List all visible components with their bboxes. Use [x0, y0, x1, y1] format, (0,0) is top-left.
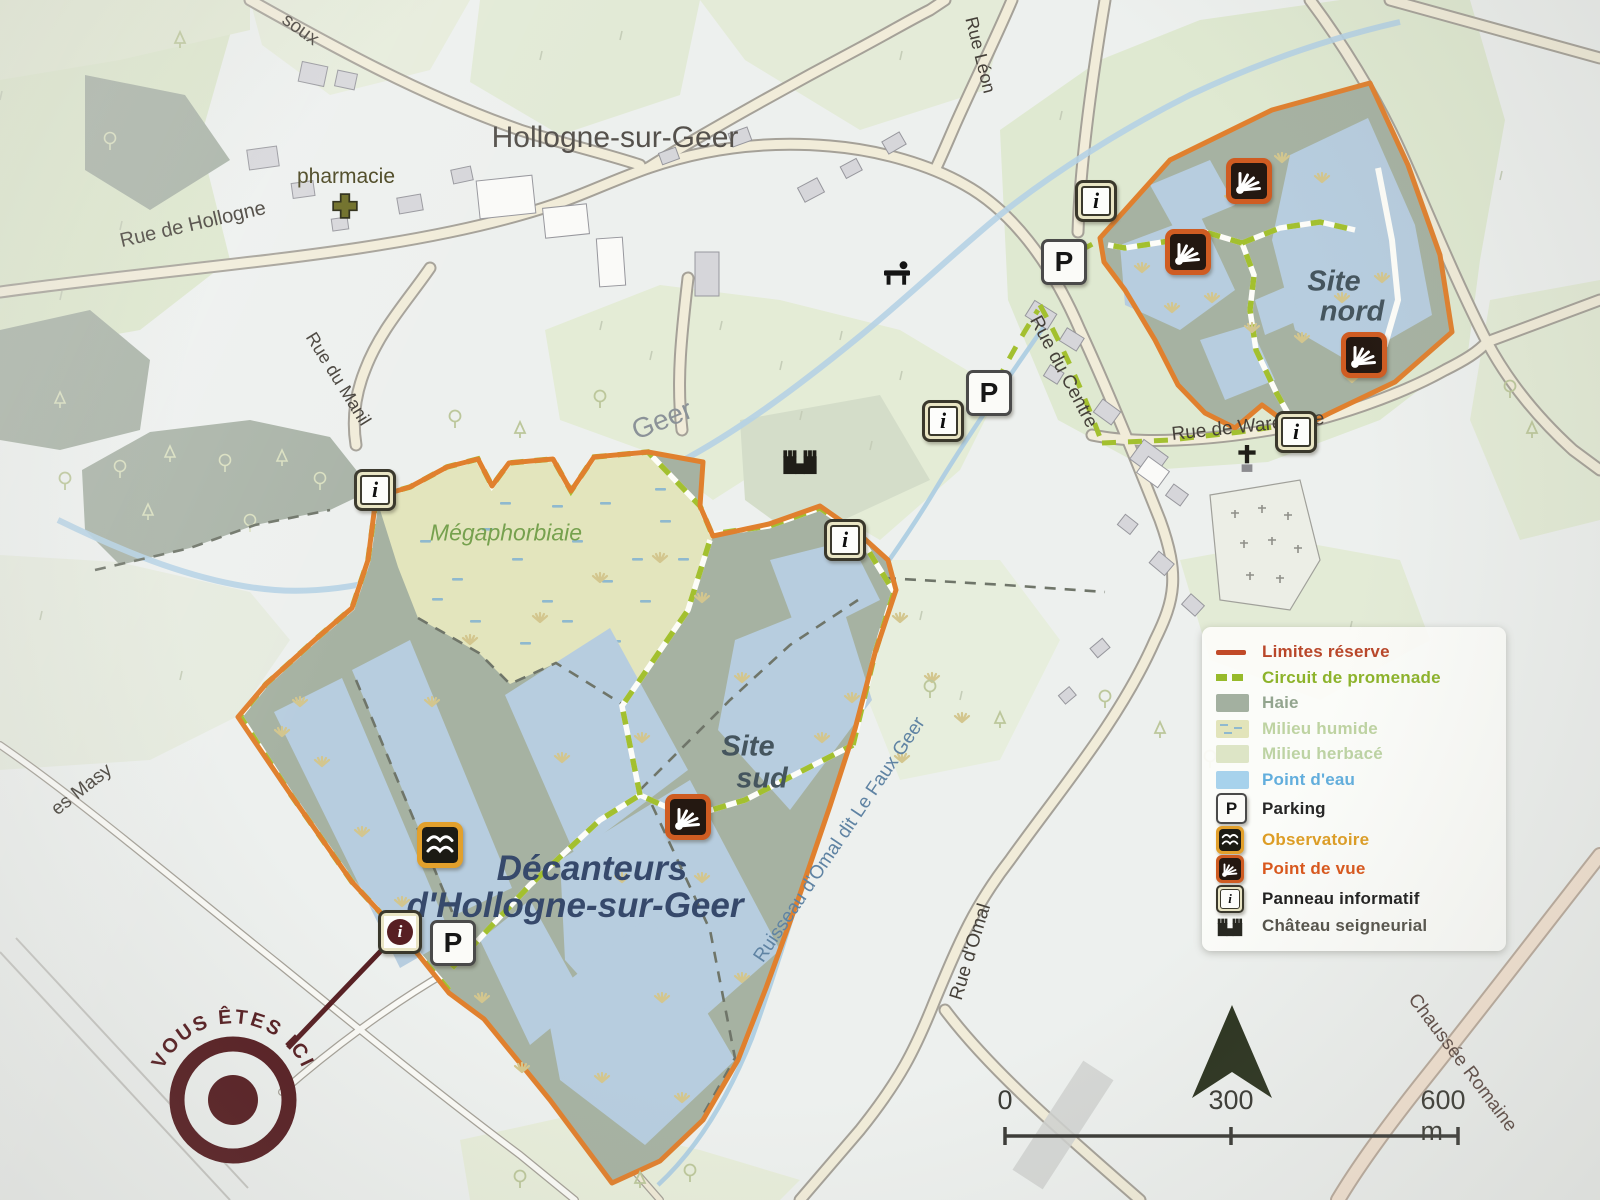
scale-start: 0 — [997, 1085, 1012, 1116]
legend-label: Point d'eau — [1262, 770, 1355, 790]
reserve-boundary-swatch — [1216, 650, 1246, 655]
info-glyph: i — [1081, 186, 1111, 216]
legend-label: Parking — [1262, 799, 1326, 819]
legend-label: Point de vue — [1262, 859, 1365, 879]
legend-item-circuit: Circuit de promenade — [1216, 666, 1492, 690]
viewpoint-rays-icon — [670, 799, 706, 835]
label-reserve-name-1: Décanteurs — [497, 849, 688, 889]
parking-icon: P — [1041, 239, 1087, 285]
legend-label: Haie — [1262, 693, 1299, 713]
label-megaphorbiaie: Mégaphorbiaie — [430, 520, 582, 547]
you-are-here-marker-icon: i — [378, 910, 422, 954]
label-site-sud-1: Site — [721, 731, 774, 764]
wetland-swatch — [1216, 720, 1249, 738]
castle-glyph-icon — [781, 445, 819, 477]
marker-inner: i — [384, 916, 416, 948]
info-glyph: i — [1281, 417, 1311, 447]
observatory-icon — [417, 822, 463, 868]
legend-item-milieu-humide: Milieu humide — [1216, 717, 1492, 741]
grassland-swatch — [1216, 745, 1249, 763]
info-panel-icon: i — [1075, 180, 1117, 222]
info-glyph: i — [928, 406, 958, 436]
castle-icon — [1216, 915, 1244, 938]
label-site-nord-2: nord — [1320, 296, 1384, 329]
pharmacy-cross-icon — [331, 192, 359, 220]
you-are-here-pointer: VOUS ÊTES ICI — [148, 933, 398, 1156]
legend-label: Panneau informatif — [1262, 889, 1420, 909]
bench-icon — [882, 260, 912, 286]
viewpoint-rays-icon — [1346, 337, 1382, 373]
info-glyph: i — [1220, 889, 1240, 909]
legend-item-chateau: Château seigneurial — [1216, 914, 1492, 938]
parking-glyph: P — [1226, 799, 1237, 819]
map-canvas: VOUS ÊTES ICI — [0, 0, 1600, 1200]
marker-glyph: i — [387, 919, 413, 945]
legend-label: Observatoire — [1262, 830, 1369, 850]
legend-item-haie: Haie — [1216, 691, 1492, 715]
scale-middle: 300 — [1208, 1085, 1253, 1116]
viewpoint-rays-icon — [1170, 234, 1206, 270]
birds-icon — [422, 827, 458, 863]
rural-tracks — [0, 938, 248, 1200]
info-panel-icon: i — [1275, 411, 1317, 453]
hedge-swatch — [1216, 694, 1249, 712]
parking-glyph: P — [444, 927, 463, 959]
legend-label: Circuit de promenade — [1262, 668, 1441, 688]
parking-glyph: P — [1055, 246, 1074, 278]
legend-item-panneau: i Panneau informatif — [1216, 885, 1492, 913]
legend-label: Château seigneurial — [1262, 916, 1427, 936]
legend-label: Limites réserve — [1262, 642, 1390, 662]
church-cross-icon — [1234, 445, 1260, 473]
legend-label: Milieu humide — [1262, 719, 1378, 739]
info-panel-icon: i — [354, 469, 396, 511]
legend-item-point-eau: Point d'eau — [1216, 768, 1492, 792]
viewpoint-icon — [1216, 855, 1244, 883]
label-site-nord-1: Site — [1307, 266, 1360, 299]
legend-label: Milieu herbacé — [1262, 744, 1383, 764]
info-panel-icon: i — [922, 400, 964, 442]
scale-end: 600 m — [1420, 1085, 1465, 1147]
viewpoint-icon — [665, 794, 711, 840]
castle-icon — [781, 445, 819, 477]
info-panel-icon: i — [1216, 885, 1244, 913]
parking-icon: P — [966, 370, 1012, 416]
parking-glyph: P — [980, 377, 999, 409]
legend-box: Limites réserve Circuit de promenade Hai… — [1202, 627, 1506, 951]
label-village: Hollogne-sur-Geer — [492, 121, 739, 155]
viewpoint-icon — [1226, 158, 1272, 204]
water-swatch — [1216, 771, 1249, 789]
info-glyph: i — [360, 475, 390, 505]
parking-icon: P — [430, 920, 476, 966]
viewpoint-icon — [1341, 332, 1387, 378]
info-panel-icon: i — [824, 519, 866, 561]
observatory-icon — [1216, 826, 1244, 854]
viewpoint-rays-icon — [1231, 163, 1267, 199]
label-site-sud-2: sud — [736, 763, 788, 796]
legend-item-parking: P Parking — [1216, 793, 1492, 824]
parking-icon: P — [1216, 793, 1247, 824]
label-pharmacie: pharmacie — [297, 165, 395, 189]
info-glyph: i — [830, 525, 860, 555]
legend-item-limites: Limites réserve — [1216, 640, 1492, 664]
legend-item-observatoire: Observatoire — [1216, 826, 1492, 854]
map-panel-photo: VOUS ÊTES ICI Hollogne-sur-Geer pharmaci… — [0, 0, 1600, 1200]
circuit-swatch — [1216, 674, 1243, 681]
viewpoint-icon — [1165, 229, 1211, 275]
legend-item-milieu-herbace: Milieu herbacé — [1216, 742, 1492, 766]
legend-item-point-de-vue: Point de vue — [1216, 855, 1492, 883]
scale-bar: 0 300 600 m — [985, 1085, 1475, 1155]
